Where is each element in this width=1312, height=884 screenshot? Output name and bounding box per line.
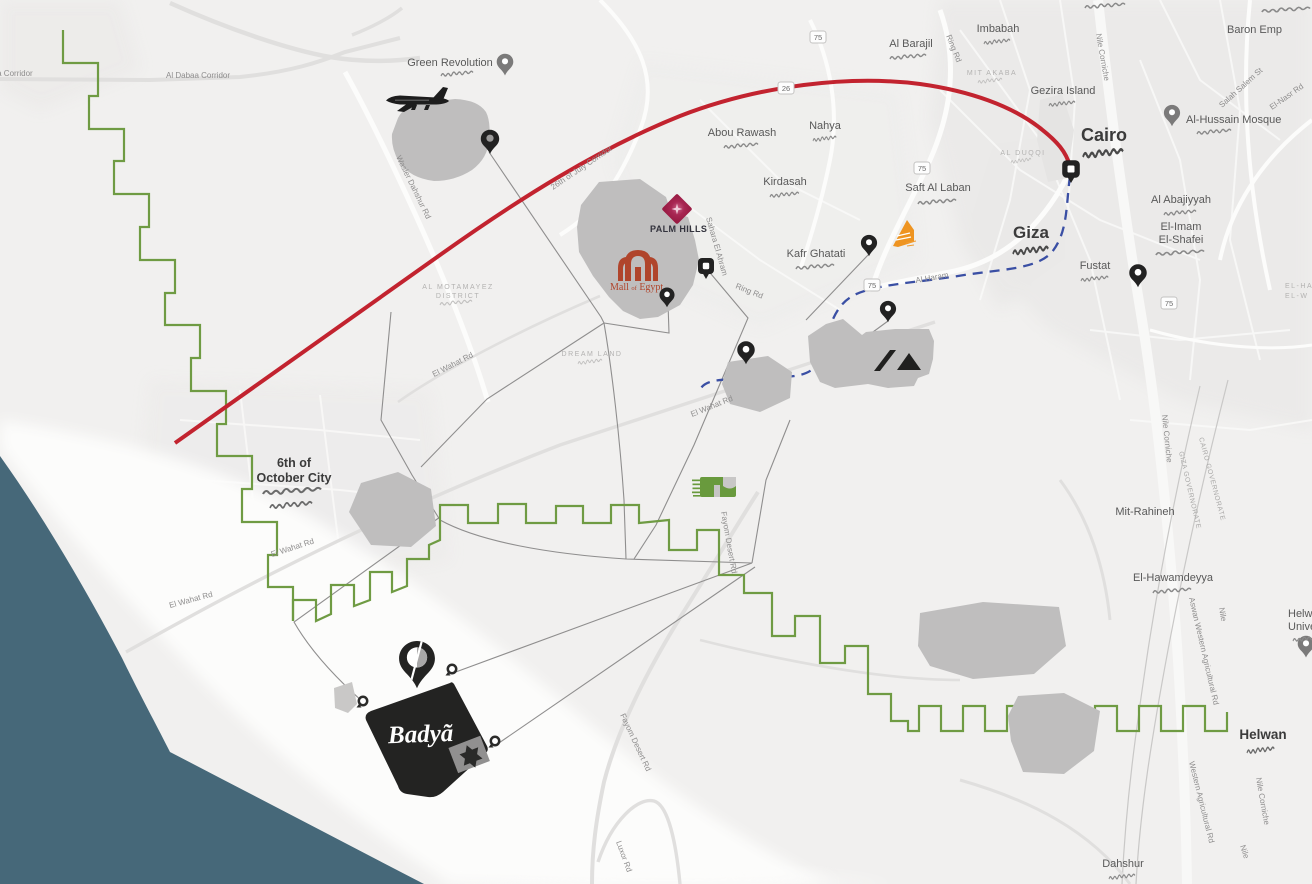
svg-text:Dahshur: Dahshur bbox=[1102, 858, 1144, 870]
svg-text:DREAM LAND: DREAM LAND bbox=[562, 351, 623, 358]
svg-text:75: 75 bbox=[918, 164, 926, 173]
svg-text:Cairo: Cairo bbox=[1081, 125, 1127, 145]
svg-text:Kafr Ghatati: Kafr Ghatati bbox=[787, 248, 846, 260]
svg-text:Nahya: Nahya bbox=[809, 120, 842, 132]
svg-text:Green Revolution: Green Revolution bbox=[407, 57, 493, 69]
svg-text:October City: October City bbox=[256, 471, 331, 485]
svg-text:El-Imam: El-Imam bbox=[1161, 221, 1202, 233]
svg-text:AL MOTAMAYEZ: AL MOTAMAYEZ bbox=[422, 284, 494, 291]
svg-text:Mit-Rahineh: Mit-Rahineh bbox=[1115, 506, 1174, 518]
svg-text:Al Barajil: Al Barajil bbox=[889, 38, 932, 50]
svg-text:Al Abajiyyah: Al Abajiyyah bbox=[1151, 194, 1211, 206]
svg-text:El-Hawamdeyya: El-Hawamdeyya bbox=[1133, 572, 1214, 584]
svg-text:75: 75 bbox=[814, 33, 822, 42]
svg-text:MIT AKABA: MIT AKABA bbox=[967, 70, 1017, 77]
svg-text:Helwan: Helwan bbox=[1288, 608, 1312, 620]
svg-text:Dabaa Corridor: Dabaa Corridor bbox=[0, 69, 33, 78]
svg-text:Gezira Island: Gezira Island bbox=[1031, 85, 1096, 97]
svg-text:6th of: 6th of bbox=[277, 456, 312, 470]
svg-text:Universit: Universit bbox=[1288, 621, 1312, 633]
svg-text:DISTRICT: DISTRICT bbox=[436, 293, 480, 300]
svg-text:Imbabah: Imbabah bbox=[977, 23, 1020, 35]
svg-text:Mall of Egypt: Mall of Egypt bbox=[610, 282, 663, 293]
svg-text:EL-HA: EL-HA bbox=[1285, 283, 1312, 290]
svg-text:AL DUQQI: AL DUQQI bbox=[1000, 150, 1045, 157]
svg-text:Abou Rawash: Abou Rawash bbox=[708, 127, 777, 139]
svg-text:EL-W: EL-W bbox=[1285, 293, 1309, 300]
svg-text:PALM HILLS: PALM HILLS bbox=[650, 224, 707, 234]
svg-text:Al-Hussain Mosque: Al-Hussain Mosque bbox=[1186, 114, 1281, 126]
svg-text:Giza: Giza bbox=[1013, 223, 1049, 242]
svg-text:Al Dabaa Corridor: Al Dabaa Corridor bbox=[166, 71, 230, 80]
svg-text:Badyã: Badyã bbox=[387, 720, 455, 749]
svg-text:Saft Al Laban: Saft Al Laban bbox=[905, 182, 970, 194]
svg-text:El-Shafei: El-Shafei bbox=[1159, 234, 1204, 246]
svg-text:Kirdasah: Kirdasah bbox=[763, 176, 806, 188]
svg-text:26: 26 bbox=[782, 84, 790, 93]
svg-text:Baron Emp: Baron Emp bbox=[1227, 24, 1282, 36]
svg-text:Fustat: Fustat bbox=[1080, 260, 1111, 272]
svg-text:75: 75 bbox=[1165, 299, 1173, 308]
svg-text:Helwan: Helwan bbox=[1239, 727, 1286, 742]
svg-text:75: 75 bbox=[868, 281, 876, 290]
